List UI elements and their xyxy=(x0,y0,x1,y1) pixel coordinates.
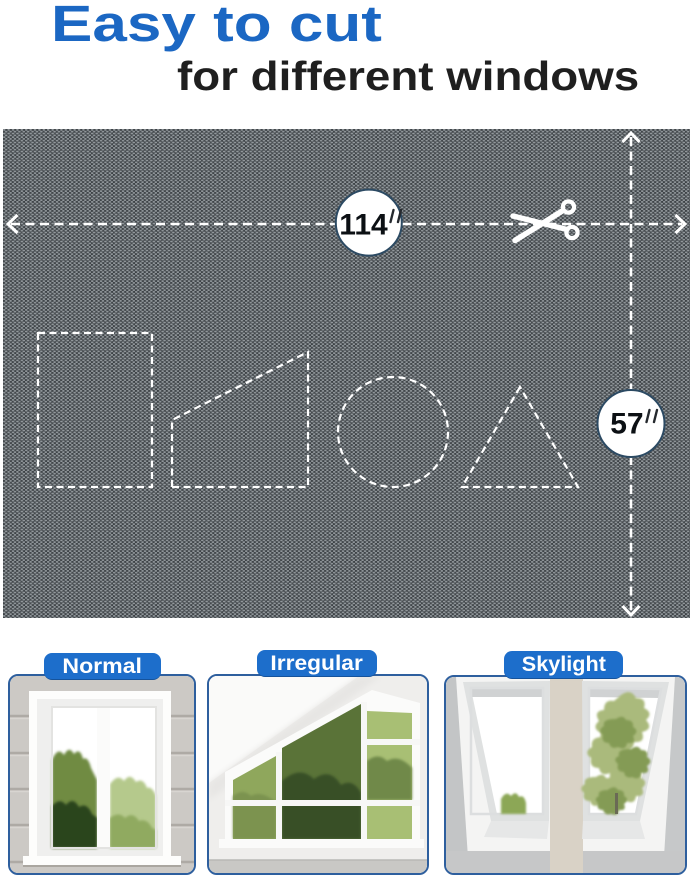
svg-text:57: 57 xyxy=(610,408,643,441)
svg-text:114: 114 xyxy=(339,209,388,242)
